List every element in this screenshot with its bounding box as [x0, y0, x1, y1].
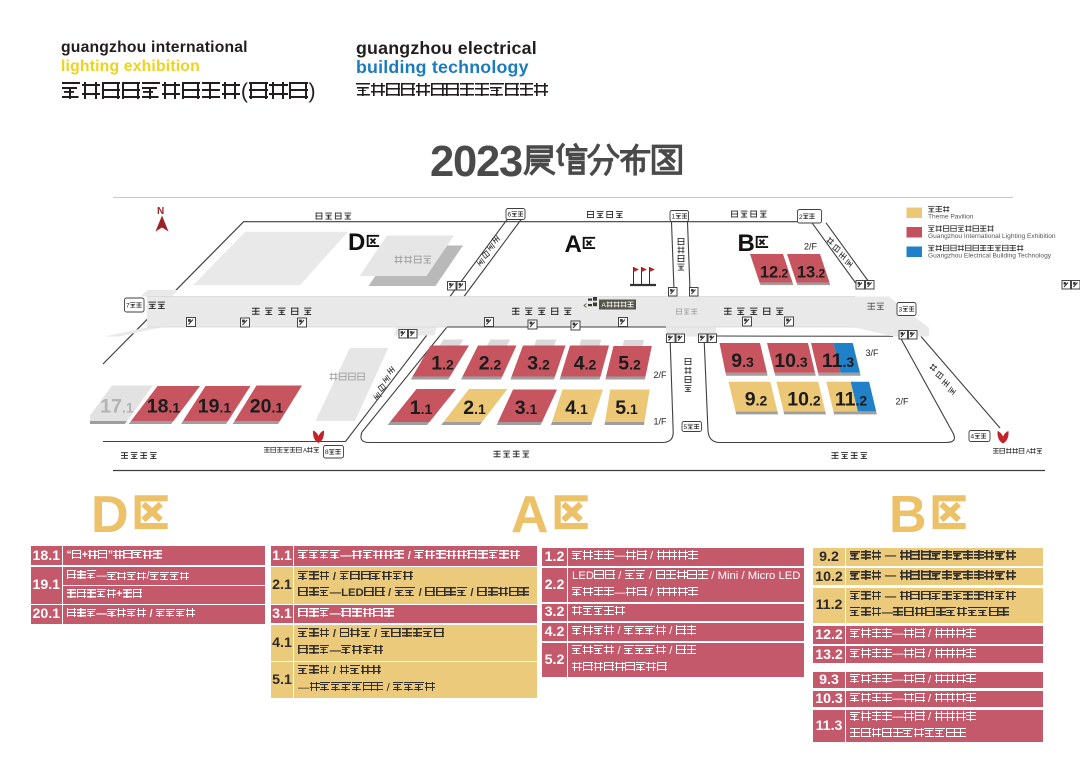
svg-text:D: D [91, 491, 129, 539]
svg-text:11.2: 11.2 [835, 389, 868, 411]
svg-text:Guangzhou Electrical Building: Guangzhou Electrical Building Technology [928, 253, 1052, 260]
svg-text:3.1: 3.1 [515, 397, 538, 419]
svg-text:1.1: 1.1 [410, 397, 433, 419]
svg-text:2/F: 2/F [804, 242, 818, 252]
svg-text:6: 6 [508, 212, 512, 219]
svg-text:3: 3 [899, 307, 903, 314]
svg-text:10.2: 10.2 [787, 389, 821, 411]
svg-text:20.1: 20.1 [250, 396, 284, 418]
svg-text:B: B [889, 491, 927, 539]
svg-text:10.3: 10.3 [774, 350, 808, 372]
svg-text:2023: 2023 [430, 139, 522, 183]
svg-text:3/F: 3/F [866, 348, 880, 358]
svg-text:2.2: 2.2 [479, 353, 502, 375]
svg-text:4: 4 [971, 434, 975, 441]
svg-text:1/F: 1/F [654, 417, 668, 427]
svg-text:9.2: 9.2 [745, 389, 768, 411]
svg-text:7: 7 [126, 303, 130, 310]
svg-text:A: A [511, 491, 549, 539]
svg-text:5.2: 5.2 [618, 353, 641, 375]
svg-text:N: N [157, 206, 164, 217]
svg-text:5: 5 [684, 424, 688, 431]
svg-text:8: 8 [325, 449, 329, 456]
svg-text:9.3: 9.3 [731, 350, 754, 372]
svg-text:A: A [602, 302, 607, 309]
svg-text:2/F: 2/F [654, 370, 668, 380]
svg-text:Theme Pavilion: Theme Pavilion [928, 214, 974, 221]
svg-text:12.2: 12.2 [760, 264, 789, 282]
svg-text:1.2: 1.2 [431, 353, 454, 375]
svg-text:5.1: 5.1 [615, 397, 638, 419]
svg-text:4.2: 4.2 [574, 353, 597, 375]
svg-text:13.2: 13.2 [797, 264, 826, 282]
svg-text:2.1: 2.1 [463, 397, 486, 419]
svg-text:2/F: 2/F [896, 397, 910, 407]
svg-text:Guangzhou International Lighti: Guangzhou International Lighting Exhibit… [928, 233, 1056, 240]
svg-text:18.1: 18.1 [147, 396, 181, 418]
svg-text:19.1: 19.1 [198, 396, 232, 418]
svg-text:4.1: 4.1 [565, 397, 588, 419]
svg-text:A: A [565, 231, 582, 258]
svg-text:D: D [348, 229, 365, 256]
svg-text:11.3: 11.3 [822, 350, 855, 372]
svg-text:1: 1 [672, 214, 676, 221]
svg-text:3.2: 3.2 [527, 353, 550, 375]
svg-text:2: 2 [799, 214, 803, 221]
svg-text:17.1: 17.1 [100, 396, 134, 418]
svg-text:B: B [738, 230, 755, 257]
